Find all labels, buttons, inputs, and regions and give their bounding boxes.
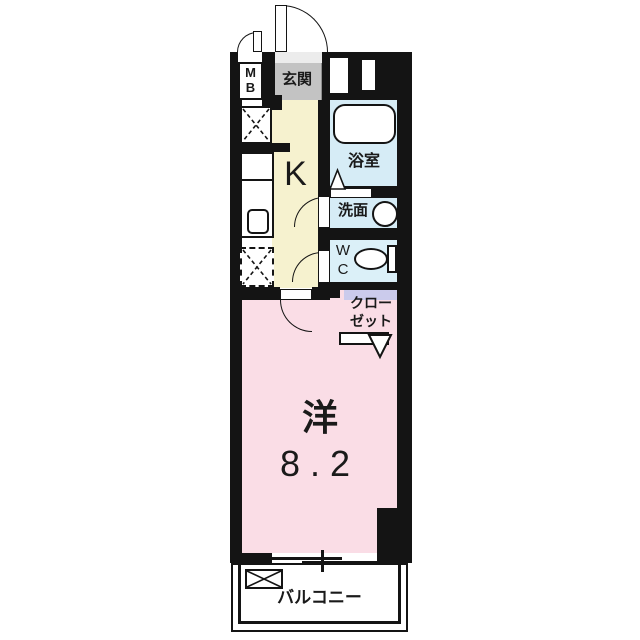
structural-column [377, 508, 412, 563]
toilet-door-leaf [318, 250, 330, 283]
kitchen-counter [240, 152, 274, 238]
toilet-label-c: C [332, 260, 354, 279]
sliding-window-pane-2 [302, 561, 377, 564]
entrance-door-arc [281, 5, 328, 52]
kitchen-sink [247, 209, 269, 234]
pipe-space-2 [362, 60, 375, 90]
wall-counter-band [240, 143, 290, 152]
wall-room-top-left [230, 287, 280, 300]
toilet-label: W C [332, 241, 354, 279]
balcony-equipment-box [245, 569, 283, 589]
toilet-tank [387, 245, 397, 273]
western-room-label: 洋 [242, 398, 398, 438]
wall-washroom-wc [330, 228, 398, 240]
meter-box-label-b: B [238, 80, 263, 95]
closet-door [339, 332, 389, 345]
wall-right [397, 52, 412, 563]
closet-label-line2: ゼット [344, 312, 398, 330]
sliding-window-center-mark [321, 550, 324, 572]
entrance-label: 玄関 [272, 72, 322, 89]
pipe-shaft-box [240, 106, 272, 144]
counter-divider [242, 179, 272, 181]
refrigerator-space-box [240, 247, 274, 287]
closet-label: クロー ゼット [344, 294, 398, 330]
bathroom-label: 浴室 [330, 153, 398, 171]
toilet-label-w: W [332, 241, 354, 260]
bathtub [333, 104, 396, 144]
entrance-threshold [275, 52, 322, 63]
entrance-door-leaf [275, 5, 287, 52]
washroom-door-leaf [318, 196, 330, 228]
balcony-label: バルコニー [238, 589, 401, 608]
room-door-leaf [280, 289, 312, 300]
wall-bottom-left [230, 553, 272, 563]
meter-box-door-opening [238, 52, 262, 62]
sliding-window-pane-1 [272, 557, 342, 560]
wall-room-top-right [312, 287, 330, 300]
closet-label-line1: クロー [344, 294, 398, 312]
toilet-bowl [354, 248, 388, 270]
meter-box-door-leaf [253, 31, 262, 52]
meter-box-label-m: M [238, 65, 263, 80]
kitchen-label: K [272, 156, 319, 193]
floor-plan: M B 玄関 K 浴室 洗面 W C クロー ゼット 洋 8.2 バルコニー [0, 0, 640, 640]
western-room-size: 8.2 [242, 444, 398, 484]
washroom-label: 洗面 [330, 203, 376, 220]
meter-box-label: M B [238, 65, 263, 95]
pipe-space-1 [330, 58, 348, 93]
bathroom-counter [331, 189, 371, 197]
